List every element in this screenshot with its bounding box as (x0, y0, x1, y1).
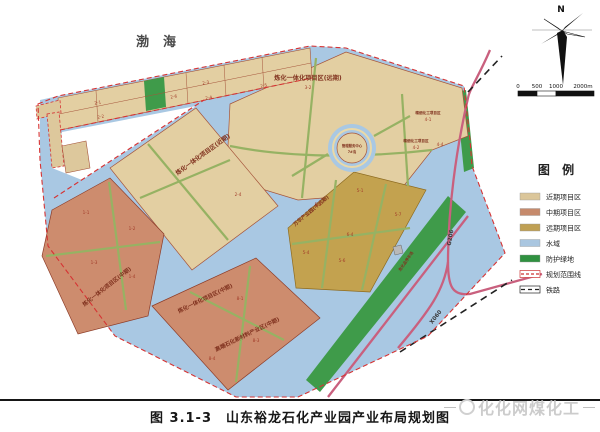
management-island-label: 管理服务中心 (342, 143, 363, 148)
parcel-label: 4-4 (437, 142, 444, 147)
compass-north-label: N (557, 5, 565, 15)
legend-title: 图 例 (538, 162, 578, 177)
parcel-label: 4-2 (413, 145, 420, 150)
parcel-label: 1-1 (83, 210, 90, 215)
zone-label-refinery-far: 炼化一体化项目区(远期) (274, 74, 342, 82)
legend-label: 远期项目区 (546, 225, 581, 233)
parcel-label: 1-2 (129, 226, 136, 231)
scale-tick: 500 (532, 84, 543, 90)
zone-label-fine-chem-b: 精细化工项目区 (403, 138, 429, 143)
watermark-logo-icon (459, 399, 475, 415)
zone-sublabel: 3-2 (305, 85, 312, 90)
parcel-label: 8-1 (237, 296, 244, 301)
parcel-label: 1-3 (91, 260, 98, 265)
watermark-text: 化化网煤化工 (478, 395, 580, 419)
scale-tick: 0 (516, 84, 520, 90)
scale-bar: 0 500 1000 2000m (516, 84, 594, 96)
legend-swatch-near (520, 193, 540, 200)
parcel-label: 5-7 (395, 212, 402, 217)
parcel-label: 5-4 (303, 250, 310, 255)
legend-swatch-far (520, 224, 540, 231)
parcel-label: 6-4 (347, 232, 354, 237)
legend-swatch-mid (520, 209, 540, 216)
legend-label: 近期项目区 (546, 193, 581, 202)
scale-tick: 2000m (573, 84, 592, 90)
legend-swatch-green (520, 255, 540, 262)
scale-segment (556, 91, 594, 96)
figure-page: 渤海 炼化一体化项目区(远期) 3-2 炼化一体化项目区(近期) 炼化一体化项目… (0, 0, 600, 432)
compass-needle-south (557, 30, 567, 85)
legend-label: 防护绿地 (546, 255, 574, 264)
watermark: 化化网煤化工 (441, 395, 598, 419)
management-island (337, 133, 367, 163)
legend-label: 规划范围线 (546, 270, 581, 279)
scale-tick: 1000 (549, 84, 563, 90)
wharf-green-parcel (144, 77, 166, 111)
legend-label: 水域 (546, 239, 560, 248)
compass-blade (562, 13, 583, 31)
pier-stub (62, 141, 90, 173)
legend-swatch-water (520, 240, 540, 247)
compass-rose: N (532, 5, 592, 85)
parcel-label: 1-4 (129, 274, 136, 279)
parcel-label: 5-1 (357, 188, 364, 193)
planning-map: 渤海 炼化一体化项目区(远期) 3-2 炼化一体化项目区(近期) 炼化一体化项目… (0, 0, 600, 432)
parcel-label: 8-3 (253, 338, 260, 343)
compass-blade (544, 19, 562, 31)
legend-label: 中期项目区 (546, 208, 581, 217)
legend: 图 例 近期项目区 中期项目区 远期项目区 水域 防护绿地 规划范围线 铁路 (520, 162, 581, 295)
scale-segment (518, 91, 537, 96)
hazard-parking-site (393, 245, 403, 255)
parcel-label: 2-4 (235, 192, 242, 197)
legend-label: 铁路 (546, 286, 560, 295)
scale-segment (537, 91, 556, 96)
parcel-label: 5-2 (315, 202, 322, 207)
zone-label-fine-chem-a: 精细化工项目区 (415, 110, 441, 115)
parcel-label: 4-1 (425, 117, 432, 122)
management-island-label2: 7#岛 (348, 149, 357, 154)
watermark-line (583, 407, 595, 408)
sea-label: 渤海 (136, 34, 190, 50)
parcel-label: 8-4 (209, 356, 216, 361)
parcel-label: 5-6 (339, 258, 346, 263)
watermark-line (444, 407, 456, 408)
